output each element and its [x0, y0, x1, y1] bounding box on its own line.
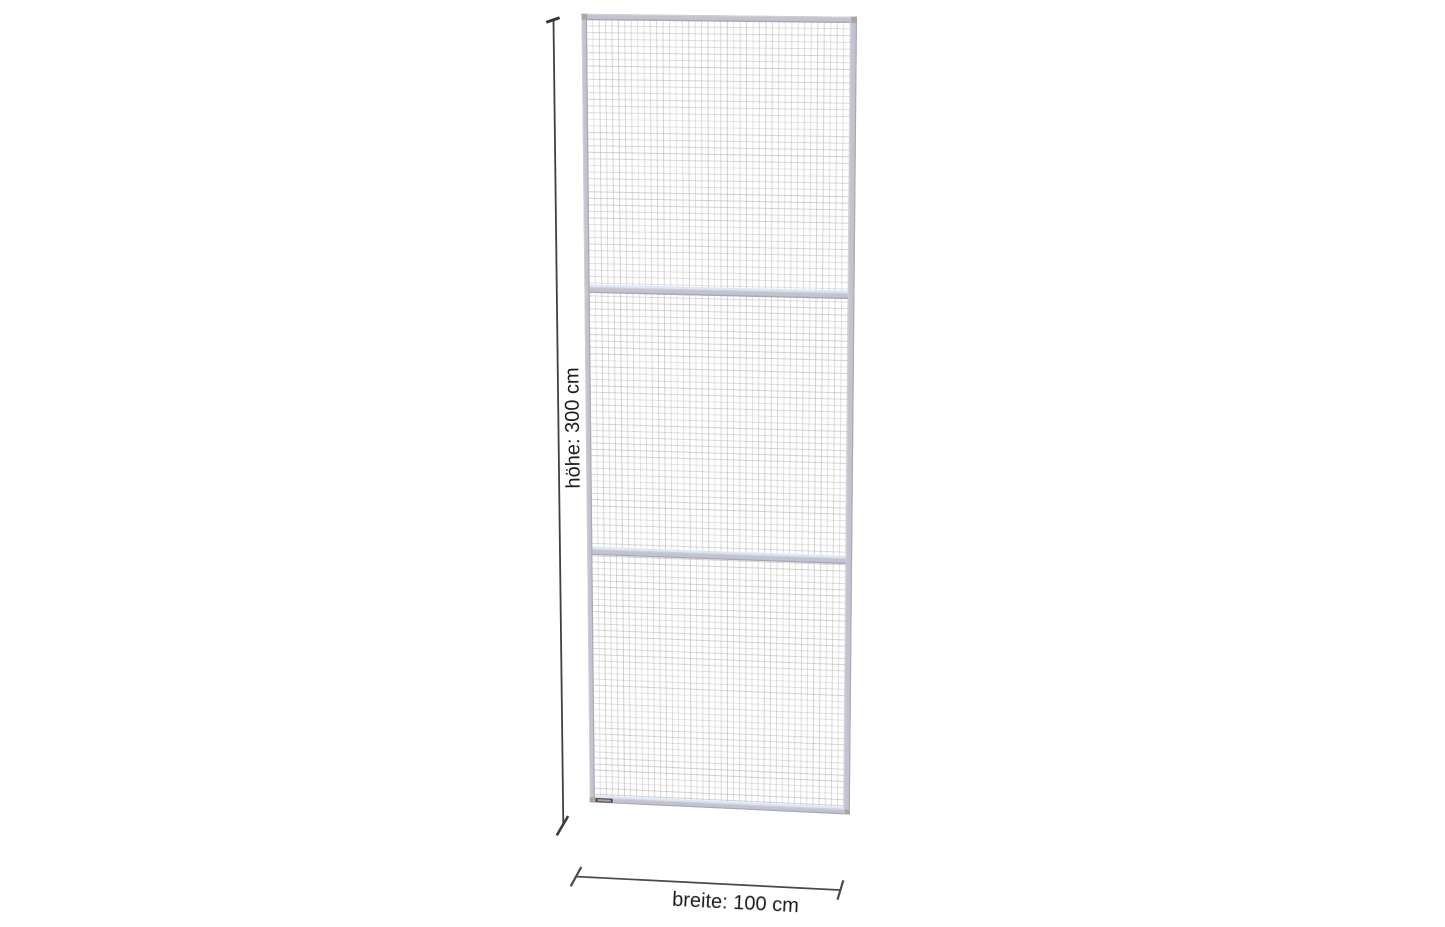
- svg-text:höhe: 300 cm: höhe: 300 cm: [561, 367, 584, 488]
- svg-text:breite: 100 cm: breite: 100 cm: [672, 889, 800, 917]
